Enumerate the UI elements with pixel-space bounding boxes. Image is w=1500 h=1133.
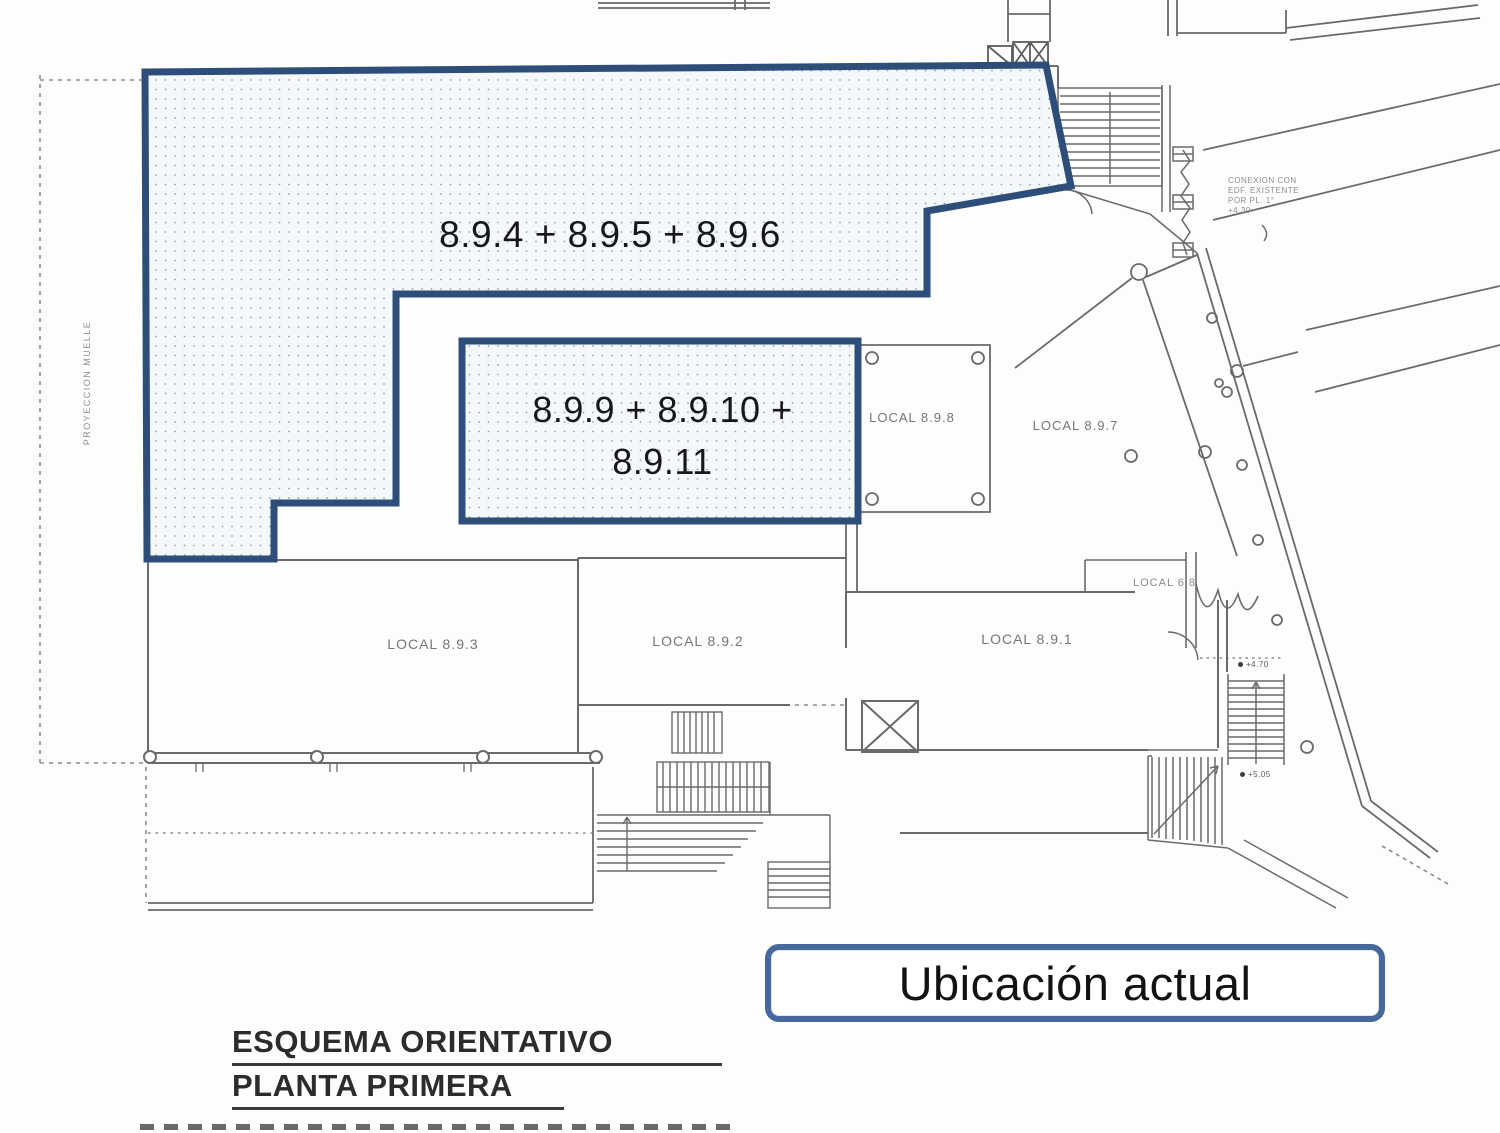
room-label-local-8-9-7: LOCAL 8.9.7	[1008, 418, 1143, 433]
level-dot	[1240, 772, 1245, 777]
current-location-label: Ubicación actual	[899, 956, 1252, 1011]
level-annotation-lower: +5.05	[1240, 770, 1271, 779]
stairs-central	[597, 712, 830, 908]
rooms-lower-band	[144, 558, 1227, 833]
level-annotation-upper: +4.70	[1238, 660, 1269, 669]
conexion-note-line: +4.30	[1228, 206, 1338, 216]
region-b-label-line2: 8.9.11	[480, 436, 845, 488]
title-underline-2	[232, 1107, 564, 1110]
scan-artifact-bar	[140, 1124, 740, 1130]
room-8-9-8	[846, 340, 990, 592]
drawing-title-line1: ESQUEMA ORIENTATIVO	[232, 1024, 722, 1060]
room-label-local-8-9-2: LOCAL 8.9.2	[623, 633, 773, 649]
central-diagonals	[1015, 255, 1237, 556]
title-underline-1	[232, 1063, 722, 1066]
current-location-callout: Ubicación actual	[765, 944, 1385, 1022]
room-label-local-8-9-3: LOCAL 8.9.3	[358, 636, 508, 652]
region-b-label-line1: 8.9.9 + 8.9.10 +	[480, 384, 845, 436]
floor-plan-page: 8.9.4 + 8.9.5 + 8.9.6 8.9.9 + 8.9.10 + 8…	[0, 0, 1500, 1133]
drawing-title-block: ESQUEMA ORIENTATIVO PLANTA PRIMERA	[232, 1024, 722, 1110]
region-a-label: 8.9.4 + 8.9.5 + 8.9.6	[310, 214, 910, 256]
facade-diagonal	[1197, 248, 1438, 858]
conexion-note: CONEXION CON EDF. EXISTENTE POR PL. 1° +…	[1228, 176, 1338, 216]
conexion-note-line: EDF. EXISTENTE	[1228, 186, 1338, 196]
proyeccion-muelle-note: PROYECCION MUELLE	[82, 298, 94, 468]
stairs-top-right	[1058, 85, 1197, 253]
level-dot	[1238, 662, 1243, 667]
lower-left-block	[148, 767, 593, 910]
room-label-local-6-8: LOCAL 6.8	[1122, 577, 1207, 589]
room-label-local-8-9-8: LOCAL 8.9.8	[852, 410, 972, 425]
drawing-title-line2: PLANTA PRIMERA	[232, 1068, 722, 1104]
conexion-note-line: POR PL. 1°	[1228, 196, 1338, 206]
room-6-8	[1085, 552, 1258, 648]
room-label-local-8-9-1: LOCAL 8.9.1	[952, 631, 1102, 647]
top-edge-walls	[598, 0, 1050, 42]
conexion-note-line: CONEXION CON	[1228, 176, 1338, 186]
region-b-label: 8.9.9 + 8.9.10 + 8.9.11	[480, 384, 845, 488]
